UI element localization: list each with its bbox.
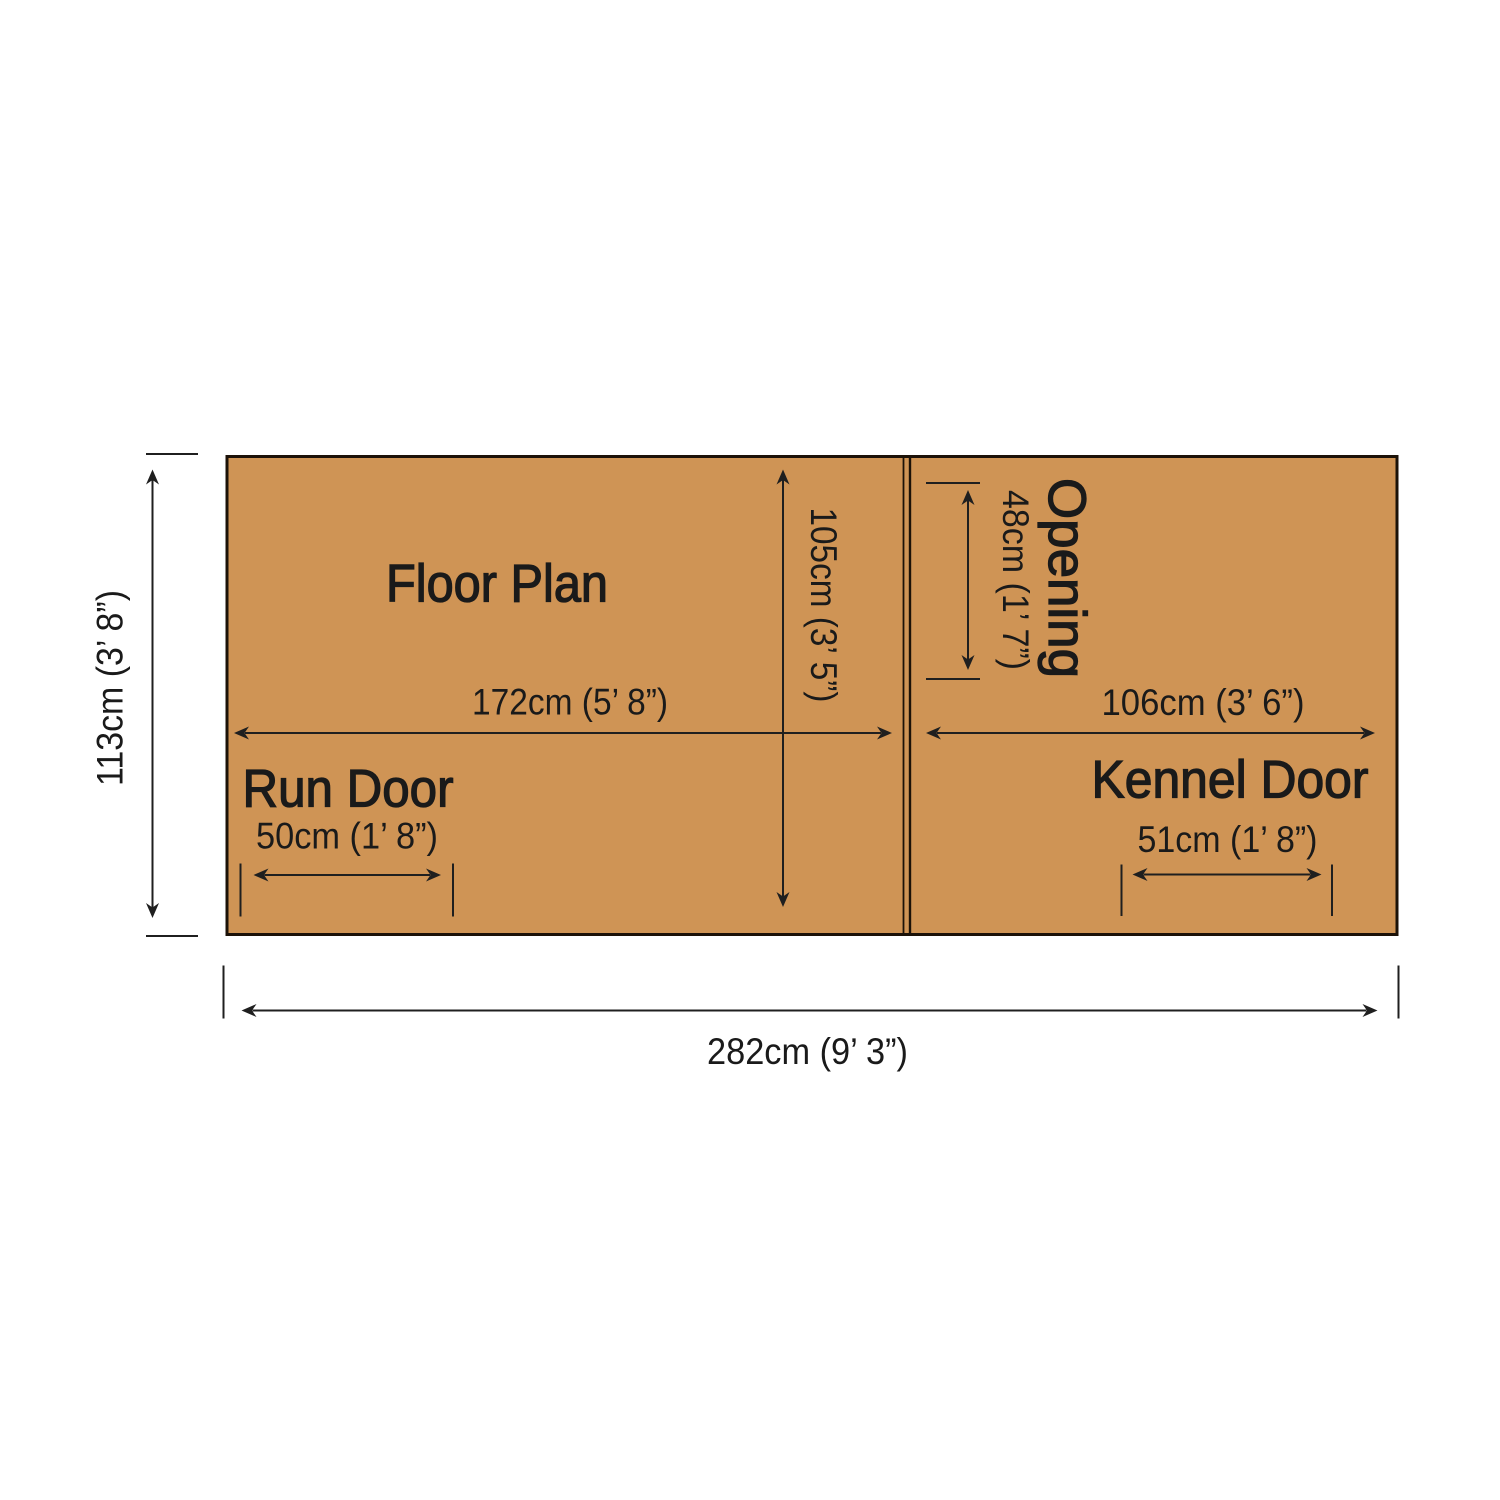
svg-text:Kennel Door: Kennel Door <box>1092 751 1369 810</box>
svg-text:Opening: Opening <box>1037 478 1096 678</box>
svg-text:105cm (3’ 5”): 105cm (3’ 5”) <box>803 508 844 703</box>
svg-text:282cm (9’ 3”): 282cm (9’ 3”) <box>707 1031 908 1072</box>
svg-text:51cm (1’ 8”): 51cm (1’ 8”) <box>1138 819 1318 860</box>
svg-text:50cm (1’ 8”): 50cm (1’ 8”) <box>256 816 438 857</box>
svg-text:106cm (3’ 6”): 106cm (3’ 6”) <box>1102 682 1305 723</box>
svg-text:172cm (5’ 8”): 172cm (5’ 8”) <box>472 682 668 723</box>
svg-text:Floor Plan: Floor Plan <box>386 555 608 614</box>
svg-text:48cm (1’ 7”): 48cm (1’ 7”) <box>995 490 1036 670</box>
svg-text:Run Door: Run Door <box>243 760 454 819</box>
svg-text:113cm (3’ 8”): 113cm (3’ 8”) <box>90 590 131 786</box>
